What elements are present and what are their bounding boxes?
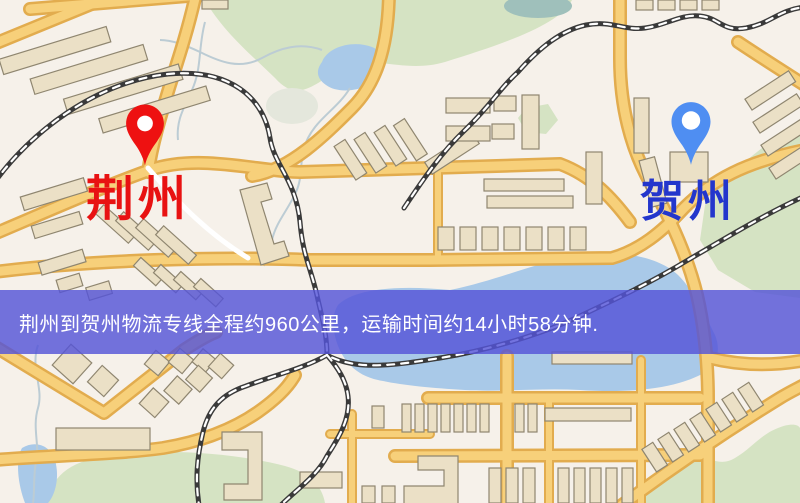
route-info-text: 荆州到贺州物流专线全程约960公里，运输时间约14小时58分钟. xyxy=(0,308,598,337)
map-background xyxy=(0,0,800,503)
destination-pin-icon xyxy=(667,101,715,166)
origin-pin xyxy=(124,102,166,168)
destination-pin xyxy=(667,101,715,166)
logistics-route-map: 荆州 贺州 荆州到贺州物流专线全程约960公里，运输时间约14小时58分钟. xyxy=(0,0,800,503)
origin-city-label: 荆州 xyxy=(86,176,190,224)
destination-city-label: 贺州 xyxy=(640,180,736,224)
origin-pin-icon xyxy=(124,102,166,168)
route-info-banner: 荆州到贺州物流专线全程约960公里，运输时间约14小时58分钟. xyxy=(0,290,800,354)
